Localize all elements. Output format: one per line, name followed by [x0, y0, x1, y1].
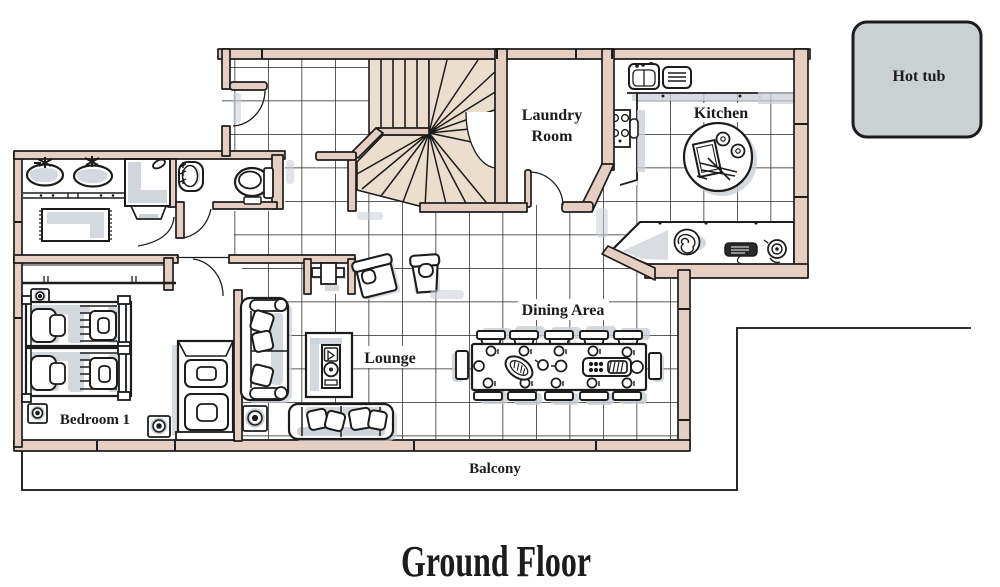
- svg-text:Laundry: Laundry: [522, 107, 582, 124]
- svg-text:Lounge: Lounge: [364, 350, 416, 367]
- svg-text:Hot tub: Hot tub: [893, 68, 946, 85]
- svg-text:Balcony: Balcony: [469, 461, 521, 477]
- svg-text:Kitchen: Kitchen: [694, 105, 748, 122]
- svg-text:Room: Room: [532, 128, 574, 145]
- svg-text:Dining Area: Dining Area: [522, 302, 605, 319]
- svg-text:Ground Floor: Ground Floor: [401, 537, 591, 586]
- svg-text:Bedroom 1: Bedroom 1: [60, 412, 130, 428]
